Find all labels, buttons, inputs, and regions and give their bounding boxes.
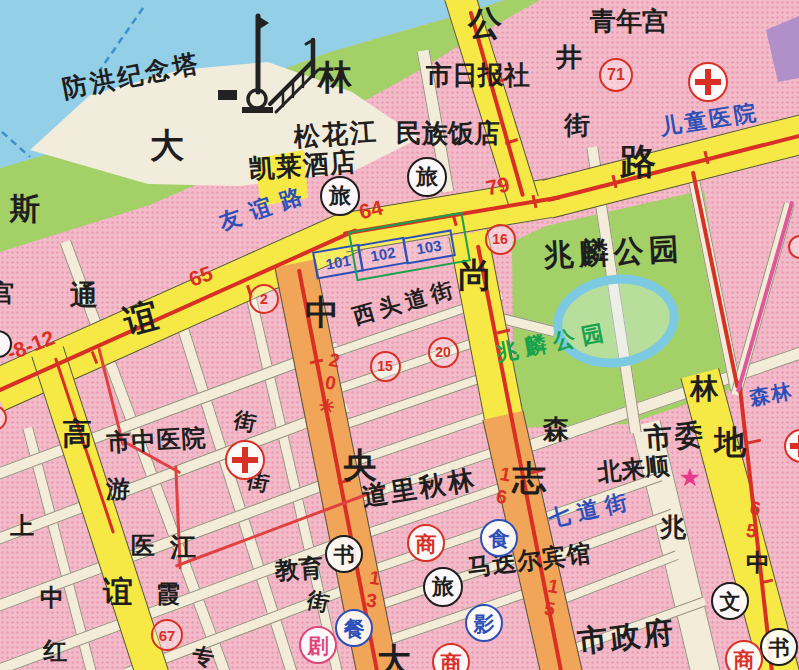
gong-char-partial: 宫 xyxy=(0,280,14,305)
zhuan-char: 专 xyxy=(191,644,216,670)
stop-2: 2 xyxy=(249,284,279,314)
senlin-char-2: 林 xyxy=(690,374,718,403)
jiaoyu-label: 教育 xyxy=(274,555,324,583)
zhaolin-park-label: 兆麟公园 xyxy=(543,233,684,272)
city-map-canvas: 防洪纪念塔斯大林公松花江凯莱酒店民族饭店市日报社青年宫井街路儿童医院友谊路谊通江… xyxy=(0,0,799,670)
diduan-char: 地 xyxy=(714,426,746,460)
jing-street-char-1: 井 xyxy=(556,44,582,71)
tcm-hospital-label: 市中医院 xyxy=(106,425,207,455)
shiwei-label: 市委 xyxy=(643,420,707,454)
tongjiang-char-1: 通 xyxy=(70,281,98,310)
bookstore-badge-east: 书 xyxy=(760,628,798,666)
stop-67: 67 xyxy=(151,619,183,651)
hotel-badge-minzu: 旅 xyxy=(407,157,447,197)
food-badge-shi: 食 xyxy=(480,519,518,557)
zhongyang-char-1: 中 xyxy=(305,295,339,331)
minzu-hotel-label: 民族饭店 xyxy=(396,120,500,147)
hongxia-char-2: 霞 xyxy=(156,581,180,606)
zhong-char-east: 中 xyxy=(746,550,770,575)
theater-badge-ju: 剧 xyxy=(299,626,337,664)
gaoyi-char-2: 谊 xyxy=(103,576,133,608)
shop-badge-central: 商 xyxy=(407,524,445,562)
stop-71: 71 xyxy=(599,58,633,92)
tongjiang-char-2: 江 xyxy=(170,534,196,561)
gaoyi-char-1: 高 xyxy=(62,418,92,450)
lu-road-char: 路 xyxy=(620,143,656,181)
purple-area xyxy=(766,16,799,82)
zhongyang-char-3: 大 xyxy=(377,643,411,670)
daily-news-label: 市日报社 xyxy=(426,62,530,89)
zhaolin-street-char: 兆 xyxy=(660,514,686,541)
hospital-cross-youth xyxy=(688,62,728,102)
stop-20: 20 xyxy=(428,337,459,368)
restaurant-badge-can: 餐 xyxy=(335,609,373,647)
hotel-badge-madieer: 旅 xyxy=(423,567,463,607)
culture-badge-wen: 文 xyxy=(711,582,749,620)
hotel-badge-gloria: 旅 xyxy=(320,176,360,216)
hongxia-char-1: 红 xyxy=(43,638,67,663)
stalin-park-char-lin: 林 xyxy=(318,60,352,96)
shangzhi-char-2: 志 xyxy=(512,461,546,497)
cinema-badge-ying: 影 xyxy=(465,604,503,642)
stalin-park-char-gong: 公 xyxy=(468,6,502,42)
shangyou-char-1: 上 xyxy=(10,513,34,538)
jie-char-c: 街 xyxy=(305,588,331,615)
stop-16: 16 xyxy=(485,224,516,255)
zhongyi-char-1: 中 xyxy=(40,585,64,610)
jing-street-char-2: 街 xyxy=(564,112,590,139)
youth-palace-label: 青年宫 xyxy=(590,8,668,35)
bookstore-badge-jiaoyu: 书 xyxy=(325,535,363,573)
jie-char-a: 街 xyxy=(232,408,258,435)
stop-15: 15 xyxy=(370,351,401,382)
zhongyang-char-2: 央 xyxy=(343,448,377,484)
zhongyi-char-2: 医 xyxy=(131,533,155,558)
stalin-park-char-da: 大 xyxy=(150,128,184,164)
shangzhi-char-1: 尚 xyxy=(458,258,492,294)
senlin-char-1: 森 xyxy=(543,416,569,443)
gloria-inn-line1: 松花江 xyxy=(293,118,379,151)
beilaishun-star: ★ xyxy=(680,467,700,489)
shop-badge-east: 商 xyxy=(725,640,763,670)
shangyou-char-2: 游 xyxy=(106,476,130,501)
stalin-park-char-si: 斯 xyxy=(10,193,40,225)
hospital-cross-tcm xyxy=(225,440,265,480)
